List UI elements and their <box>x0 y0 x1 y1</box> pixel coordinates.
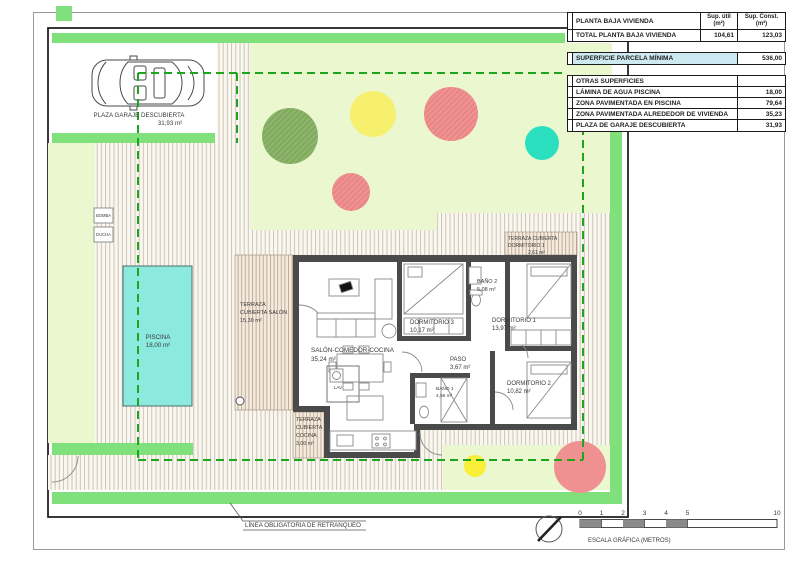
dorm3-label: DORMITORIO 3 <box>410 320 455 326</box>
bano1-area: 4,56 m² <box>436 393 453 399</box>
col-header-util-line2: (m²) <box>713 21 724 28</box>
tree-green <box>262 108 318 164</box>
bano2-area: 5,08 m² <box>477 287 496 293</box>
scale-tick: 1 <box>600 510 604 517</box>
col-header-util-line1: Sup. útil <box>707 14 731 21</box>
setback-label: LÍNEA OBLIGATORIA DE RETRANQUEO <box>245 522 361 529</box>
table-otras: OTRAS SUPERFICIES LÁMINA DE AGUA PISCINA… <box>567 75 786 132</box>
table-row: SUPERFICIE PARCELA MÍNIMA 536,00 <box>568 53 785 64</box>
table-row: ZONA PAVIMENTADA ALREDEDOR DE VIVIENDA 3… <box>568 109 785 120</box>
pump-label: BOMBA <box>96 213 111 218</box>
total-label: TOTAL PLANTA BAJA VIVIENDA <box>573 30 701 41</box>
lav-label: LAV <box>334 385 342 390</box>
car-icon <box>92 56 204 110</box>
pool-area-label: 18,00 m² <box>146 342 170 349</box>
garage-area: 31,93 m² <box>158 120 182 127</box>
bed-dorm2 <box>527 362 571 418</box>
table-row: TOTAL PLANTA BAJA VIVIENDA 104,61 123,03 <box>568 30 785 41</box>
scale-tick: 10 <box>773 510 781 517</box>
tree-teal <box>525 126 559 160</box>
kitchen-island <box>347 396 383 420</box>
dorm3-area: 10,17 m² <box>410 328 434 334</box>
terrace-cocina-label: TERRAZA <box>296 417 321 423</box>
total-util: 104,61 <box>701 30 738 41</box>
terrace-salon-area: 15,30 m² <box>240 318 262 324</box>
terrace-salon-label: TERRAZA <box>240 302 266 308</box>
tree-red-small <box>332 173 370 211</box>
scale-tick: 5 <box>686 510 690 517</box>
bano2-label: BAÑO 2 <box>477 278 497 285</box>
tree-yellow <box>350 91 396 137</box>
scale-tick: 2 <box>621 510 625 517</box>
parcela-value: 536,00 <box>738 53 785 64</box>
shelving <box>375 279 392 319</box>
table-row: ZONA PAVIMENTADA EN PISCINA 79,64 <box>568 98 785 109</box>
bed-dorm1 <box>527 264 571 318</box>
stove <box>372 434 390 448</box>
otras-row-label: LÁMINA DE AGUA PISCINA <box>573 87 738 98</box>
terrace-salon-label: CUBIERTA SALÓN <box>240 309 287 316</box>
dorm2-area: 10,82 m² <box>507 389 531 395</box>
paso-label: PASO <box>450 357 467 363</box>
col-header-const-line1: Sup. Const. <box>745 14 778 21</box>
dorm1-area: 13,97 m² <box>492 326 516 332</box>
toilet-bano1 <box>420 406 429 418</box>
bed-dorm3 <box>404 264 463 314</box>
bano1-label: BAÑO 1 <box>436 385 454 392</box>
table-row: OTRAS SUPERFICIES <box>568 76 785 87</box>
sink-bano1 <box>416 383 426 397</box>
dorm2-label: DORMITORIO 2 <box>507 381 552 387</box>
col-header-const-line2: (m²) <box>756 21 767 28</box>
pool-label: PISCINA <box>146 334 172 341</box>
paso-area: 3,67 m² <box>450 365 470 371</box>
north-arrow-icon <box>536 516 562 542</box>
toilet-bano2 <box>472 294 481 306</box>
terrace-dorm1-label: DORMITORIO 1 <box>508 243 545 249</box>
sofa <box>317 313 375 337</box>
col-header-util: Sup. útil (m²) <box>701 13 738 30</box>
parcela-label: SUPERFICIE PARCELA MÍNIMA <box>573 53 738 64</box>
table-row: PLAZA DE GARAJE DESCUBIERTA 31,93 <box>568 120 785 131</box>
terrace-column <box>236 397 244 405</box>
shrub-red <box>554 441 606 493</box>
otras-row-value: 31,93 <box>738 120 785 131</box>
salon-label: SALÓN-COMEDOR-COCINA <box>311 345 395 354</box>
shower-label: DUCHA <box>96 232 111 237</box>
otras-row-value: 79,64 <box>738 98 785 109</box>
salon-area: 35,24 m² <box>311 356 336 363</box>
tree-red-large <box>424 87 478 141</box>
table-parcela: SUPERFICIE PARCELA MÍNIMA 536,00 <box>567 52 786 65</box>
terrace-cocina-area: 3,00 m² <box>296 441 314 447</box>
dining-table <box>337 354 383 382</box>
otras-title: OTRAS SUPERFICIES <box>573 76 738 87</box>
green-swatch <box>56 6 72 21</box>
total-const: 123,03 <box>738 30 785 41</box>
dorm1-label: DORMITORIO 1 <box>492 318 537 324</box>
garage-label: PLAZA GARAJE DESCUBIERTA <box>94 112 186 119</box>
drawing-sheet: 0 1 2 3 4 5 10 ESCALA GRÁFICA (METROS) P… <box>0 0 800 565</box>
table-row: LÁMINA DE AGUA PISCINA 18,00 <box>568 87 785 98</box>
table-title: PLANTA BAJA VIVIENDA <box>573 13 701 30</box>
scale-tick: 3 <box>643 510 647 517</box>
sink <box>337 435 353 446</box>
terrace-dorm1-label: TERRAZA CUBIERTA <box>508 236 558 242</box>
otras-row-value: 35,23 <box>738 109 785 120</box>
scale-tick: 0 <box>578 510 582 517</box>
otras-row-value: 18,00 <box>738 87 785 98</box>
terrace-cocina-label: CUBIERTA <box>296 425 323 431</box>
col-header-const: Sup. Const. (m²) <box>738 13 785 30</box>
terrace-dorm1-area: 2,61 m² <box>528 250 545 256</box>
terrace-salon <box>235 255 293 410</box>
shrub-yellow <box>464 455 486 477</box>
table-main: PLANTA BAJA VIVIENDA Sup. útil (m²) Sup.… <box>567 12 786 42</box>
otras-row-label: PLAZA DE GARAJE DESCUBIERTA <box>573 120 738 131</box>
side-table <box>382 324 396 338</box>
terrace-cocina-label: COCINA <box>296 433 317 439</box>
otras-title-value <box>738 76 785 87</box>
scale-caption: ESCALA GRÁFICA (METROS) <box>588 537 671 544</box>
scale-tick: 4 <box>664 510 668 517</box>
otras-row-label: ZONA PAVIMENTADA EN PISCINA <box>573 98 738 109</box>
otras-row-label: ZONA PAVIMENTADA ALREDEDOR DE VIVIENDA <box>573 109 738 120</box>
